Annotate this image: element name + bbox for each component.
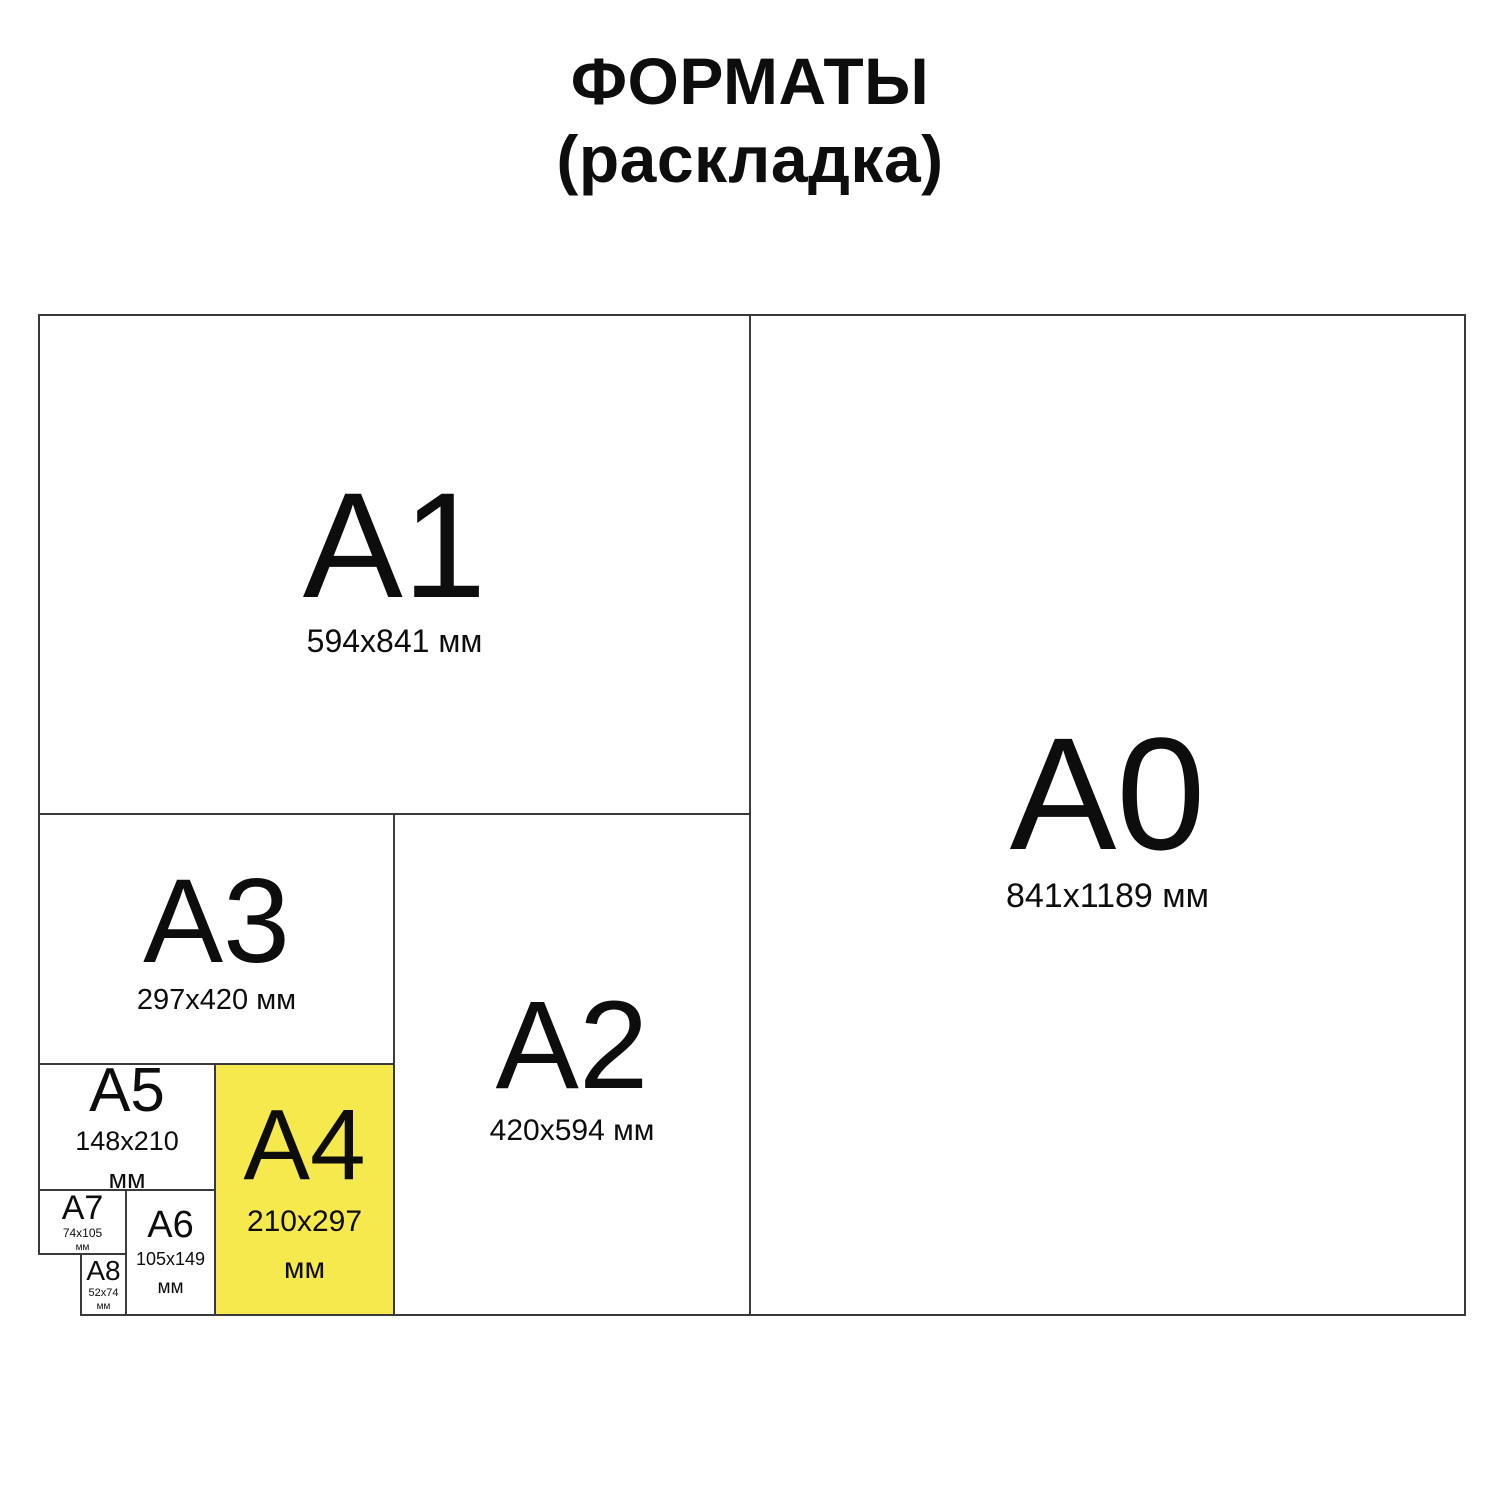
- format-unit-a7: мм: [76, 1242, 90, 1253]
- format-label-a3: А3: [143, 861, 290, 981]
- format-dimensions-a2: 420x594 мм: [490, 1114, 655, 1147]
- paper-formats-page: ФОРМАТЫ (раскладка) А1 594x841 мм А0 841…: [0, 0, 1500, 1500]
- format-box-a2: А2 420x594 мм: [393, 813, 751, 1316]
- format-dimensions-a1: 594x841 мм: [307, 624, 483, 659]
- format-label-a0: А0: [1010, 714, 1206, 874]
- format-unit-a4: мм: [284, 1252, 325, 1285]
- format-box-a5: А5 148x210 мм: [38, 1063, 216, 1191]
- format-box-a4-highlighted: А4 210x297 мм: [214, 1063, 395, 1316]
- format-unit-a8: мм: [97, 1301, 111, 1312]
- page-title-line1: ФОРМАТЫ: [0, 42, 1500, 120]
- page-title-line2: (раскладка): [0, 120, 1500, 198]
- format-label-a6: А6: [147, 1206, 193, 1244]
- format-dimensions-a7: 74x105: [63, 1227, 102, 1240]
- format-dimensions-a3: 297x420 мм: [137, 985, 296, 1017]
- format-dimensions-a0: 841x1189 мм: [1006, 878, 1209, 915]
- format-dimensions-a4: 210x297: [247, 1205, 362, 1238]
- format-label-a2: А2: [496, 983, 649, 1108]
- format-box-a6: А6 105x149 мм: [125, 1189, 216, 1316]
- format-box-a3: А3 297x420 мм: [38, 813, 395, 1065]
- format-label-a8: А8: [86, 1257, 120, 1285]
- format-label-a4: А4: [243, 1095, 365, 1195]
- format-box-a0: А0 841x1189 мм: [749, 314, 1466, 1316]
- format-box-a7: А7 74x105 мм: [38, 1189, 127, 1255]
- format-box-a8: А8 52x74 мм: [80, 1253, 127, 1316]
- page-title: ФОРМАТЫ (раскладка): [0, 42, 1500, 198]
- format-dimensions-a6: 105x149: [136, 1250, 205, 1270]
- format-dimensions-a5: 148x210: [75, 1127, 179, 1157]
- format-dimensions-a8: 52x74: [89, 1287, 119, 1299]
- format-label-a7: А7: [62, 1191, 104, 1225]
- format-unit-a6: мм: [157, 1278, 183, 1299]
- format-box-a1: А1 594x841 мм: [38, 314, 751, 815]
- format-label-a5: А5: [89, 1060, 165, 1122]
- format-label-a1: А1: [303, 470, 486, 620]
